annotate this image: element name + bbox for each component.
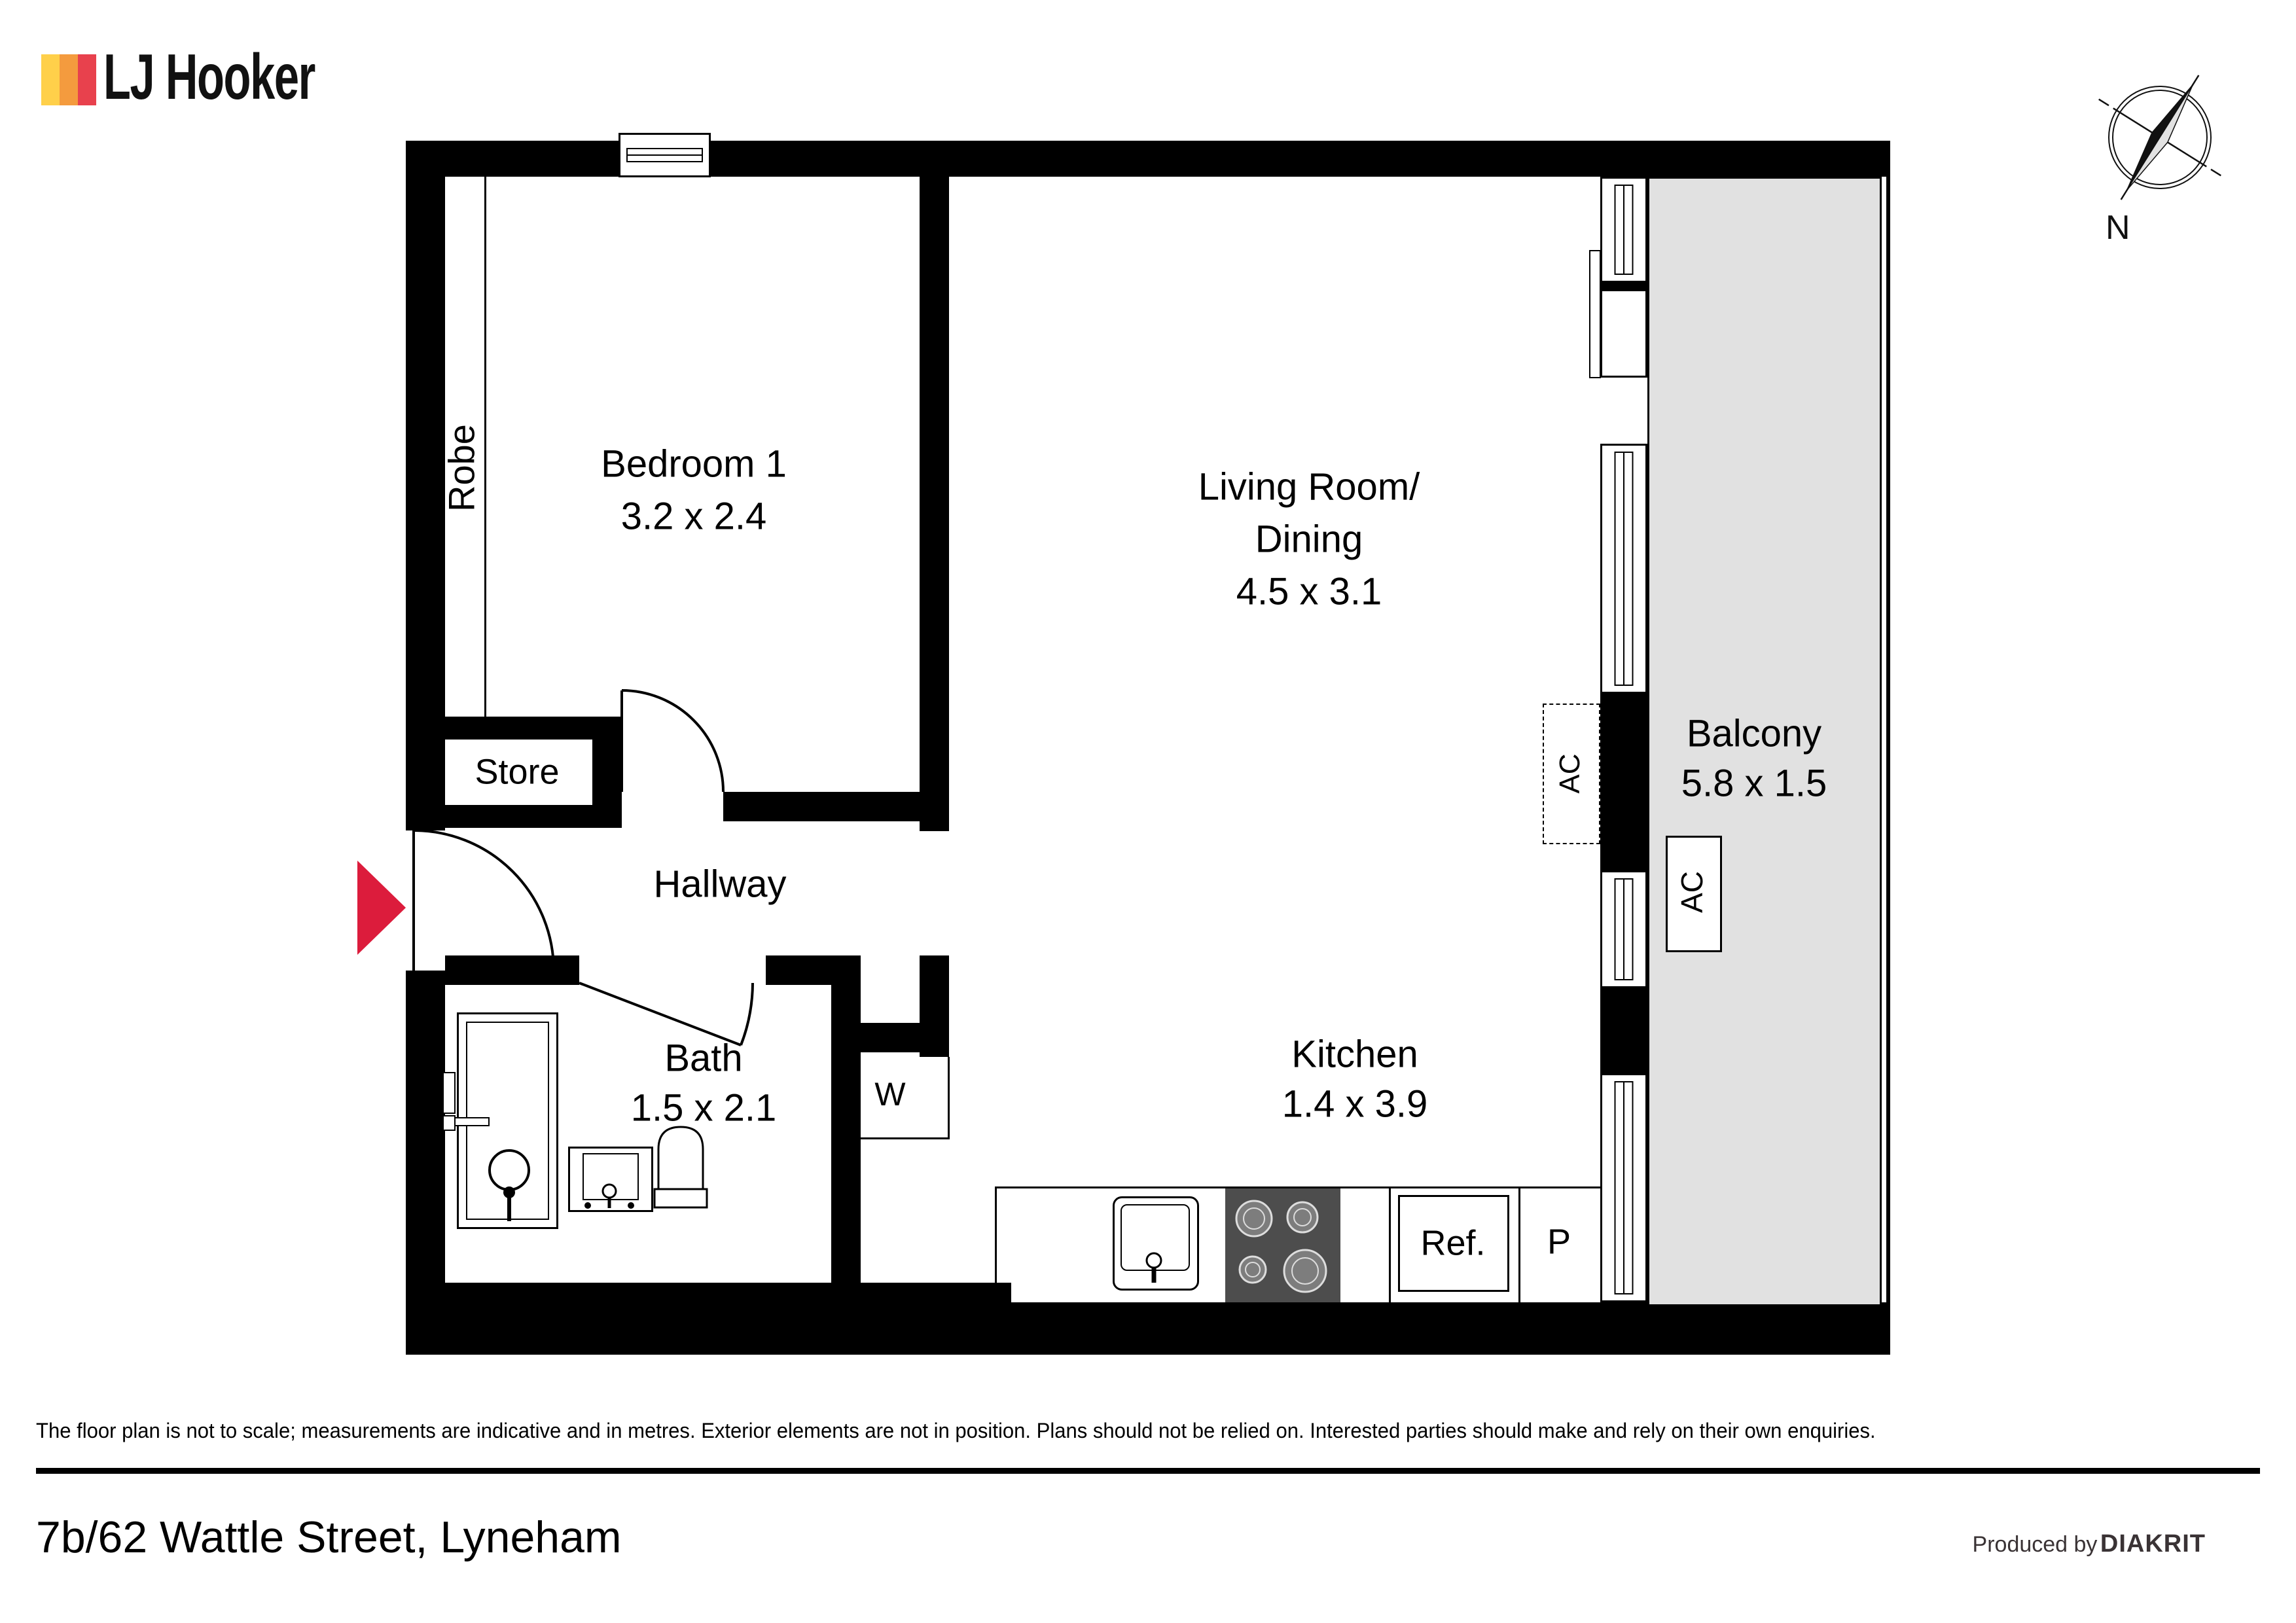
wall-bedroom-right: [920, 177, 949, 831]
label-hallway: Hallway: [653, 865, 786, 905]
towel-bar-mount: [442, 1115, 456, 1131]
brand-name: LJ Hooker: [103, 48, 315, 105]
wall-east-divider: [1600, 283, 1647, 289]
label-kitchen-name: Kitchen: [1291, 1035, 1418, 1075]
towel-bar: [454, 1117, 490, 1126]
label-ac-indoor: AC: [1555, 753, 1585, 793]
label-ac-balcony: AC: [1676, 871, 1708, 913]
label-bedroom1-dims: 3.2 x 2.4: [621, 497, 766, 537]
wall-hall-bottom-left: [445, 955, 579, 985]
label-kitchen-dims: 1.4 x 3.9: [1282, 1085, 1427, 1125]
wall-bottom: [406, 1302, 1890, 1355]
label-balcony-name: Balcony: [1687, 715, 1821, 755]
toilet-tank: [655, 1189, 707, 1207]
window-fin: [1589, 250, 1601, 378]
toilet-bowl: [658, 1127, 703, 1189]
logo-stripe-yellow: [41, 54, 60, 105]
label-living-name: Living Room/: [1198, 468, 1420, 508]
sink-inner: [1121, 1204, 1190, 1271]
wall-bath-right: [831, 955, 861, 1302]
label-bedroom1-name: Bedroom 1: [601, 445, 787, 485]
label-store: Store: [475, 754, 559, 791]
wall-left-upper: [406, 141, 445, 830]
compass-icon: N: [2065, 39, 2255, 249]
disclaimer-text: The floor plan is not to scale; measurem…: [36, 1419, 1876, 1443]
compass-north-label: N: [2106, 209, 2130, 247]
living-door-panel: [1600, 289, 1647, 378]
wall-store-bottom: [445, 805, 622, 828]
bath-door-leaf: [579, 983, 741, 1045]
produced-by-text: Produced by: [1973, 1532, 2098, 1557]
entry-door-arc: [414, 830, 554, 971]
label-living-dims: 4.5 x 3.1: [1236, 573, 1382, 613]
plan-linework: [0, 0, 2296, 1623]
wall-east-mid: [1600, 694, 1647, 870]
vanity-basin: [583, 1153, 639, 1200]
laundry-bottom-line: [861, 1137, 950, 1139]
logo-stripe-red: [78, 54, 96, 105]
bedroom-door-arc: [622, 690, 723, 792]
label-fridge: Ref.: [1420, 1225, 1485, 1262]
wall-kitchen-stub: [920, 955, 949, 1057]
footer-divider: [36, 1468, 2260, 1474]
wall-hall-bottom-right: [766, 955, 831, 985]
stove: [1225, 1188, 1340, 1302]
kitchen-window: [1600, 1073, 1647, 1302]
bath-door-arc: [741, 983, 753, 1045]
balcony-railing: [1886, 177, 1890, 1302]
label-laundry: W: [874, 1077, 905, 1112]
label-robe: Robe: [443, 424, 482, 512]
wall-east-lower: [1600, 988, 1647, 1073]
label-pantry: P: [1547, 1224, 1571, 1261]
counter-left-line: [995, 1186, 997, 1302]
label-living-name2: Dining: [1255, 520, 1363, 560]
towel-rail: [442, 1072, 456, 1114]
producer-credit: Produced by DIAKRIT: [1973, 1530, 2206, 1558]
laundry-right-line: [948, 1057, 950, 1139]
label-balcony-dims: 5.8 x 1.5: [1681, 764, 1827, 804]
label-bath-name: Bath: [664, 1039, 742, 1079]
logo-stripe-orange: [60, 54, 78, 105]
floorplan-page: LJ Hooker N: [0, 0, 2296, 1623]
living-window-1: [1600, 177, 1647, 283]
label-bath-dims: 1.5 x 2.1: [631, 1089, 776, 1129]
counter-divider-2: [1518, 1186, 1520, 1302]
wall-bath-bottom-strip: [406, 1283, 1011, 1302]
living-window-2: [1600, 444, 1647, 694]
robe-divider-line: [484, 177, 486, 717]
wall-bedroom-bottom: [723, 792, 949, 821]
property-address: 7b/62 Wattle Street, Lyneham: [36, 1512, 622, 1563]
counter-divider-1: [1389, 1186, 1391, 1302]
bedroom-window: [619, 133, 711, 177]
entry-arrow-icon: [357, 861, 406, 955]
wall-laundry-top: [861, 1023, 920, 1052]
living-window-3: [1600, 870, 1647, 988]
diakrit-logo-text: DIAKRIT: [2100, 1530, 2206, 1558]
